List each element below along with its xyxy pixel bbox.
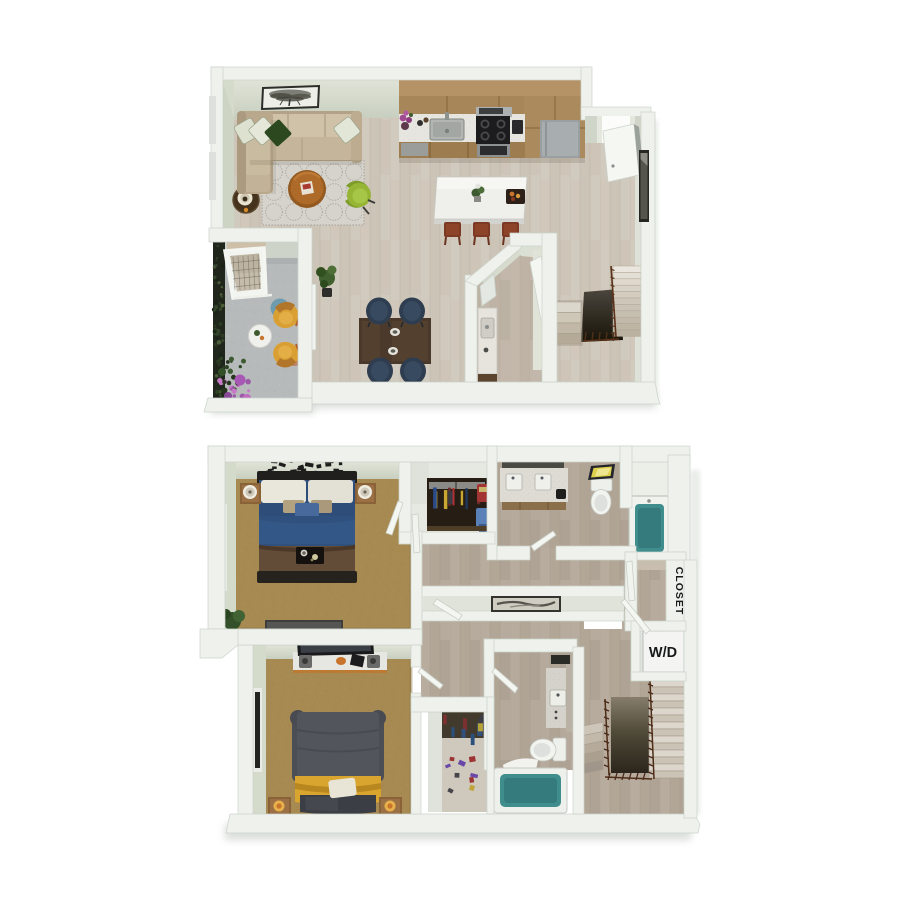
svg-text:CLOSET: CLOSET (673, 567, 685, 616)
svg-text:W/D: W/D (649, 645, 677, 661)
